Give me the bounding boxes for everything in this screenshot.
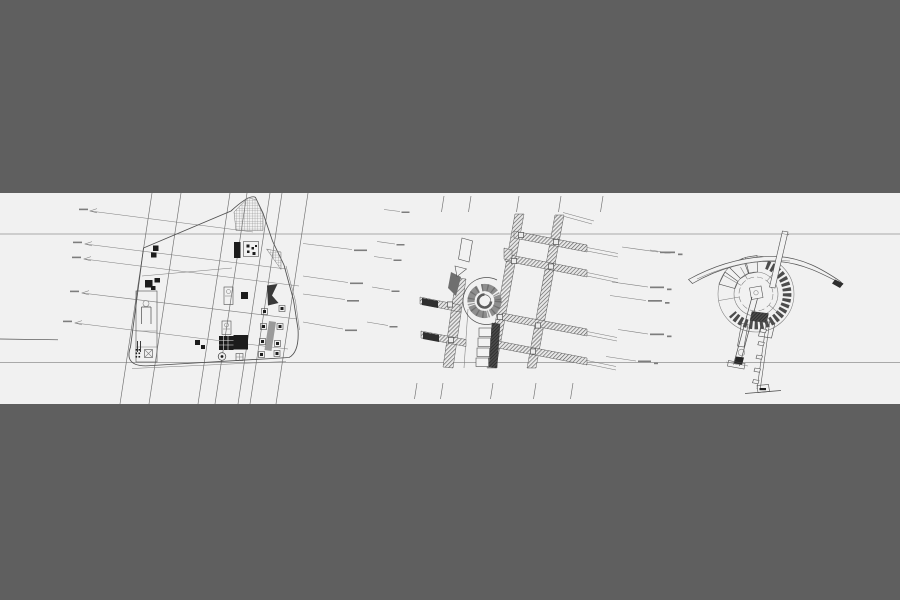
platform-ladder (476, 323, 500, 368)
sheet-canvas: Triangular site plan with crosshatched c… (0, 0, 900, 600)
cad-viewport: Triangular site plan with crosshatched c… (0, 0, 900, 600)
sheet-band (0, 193, 900, 404)
